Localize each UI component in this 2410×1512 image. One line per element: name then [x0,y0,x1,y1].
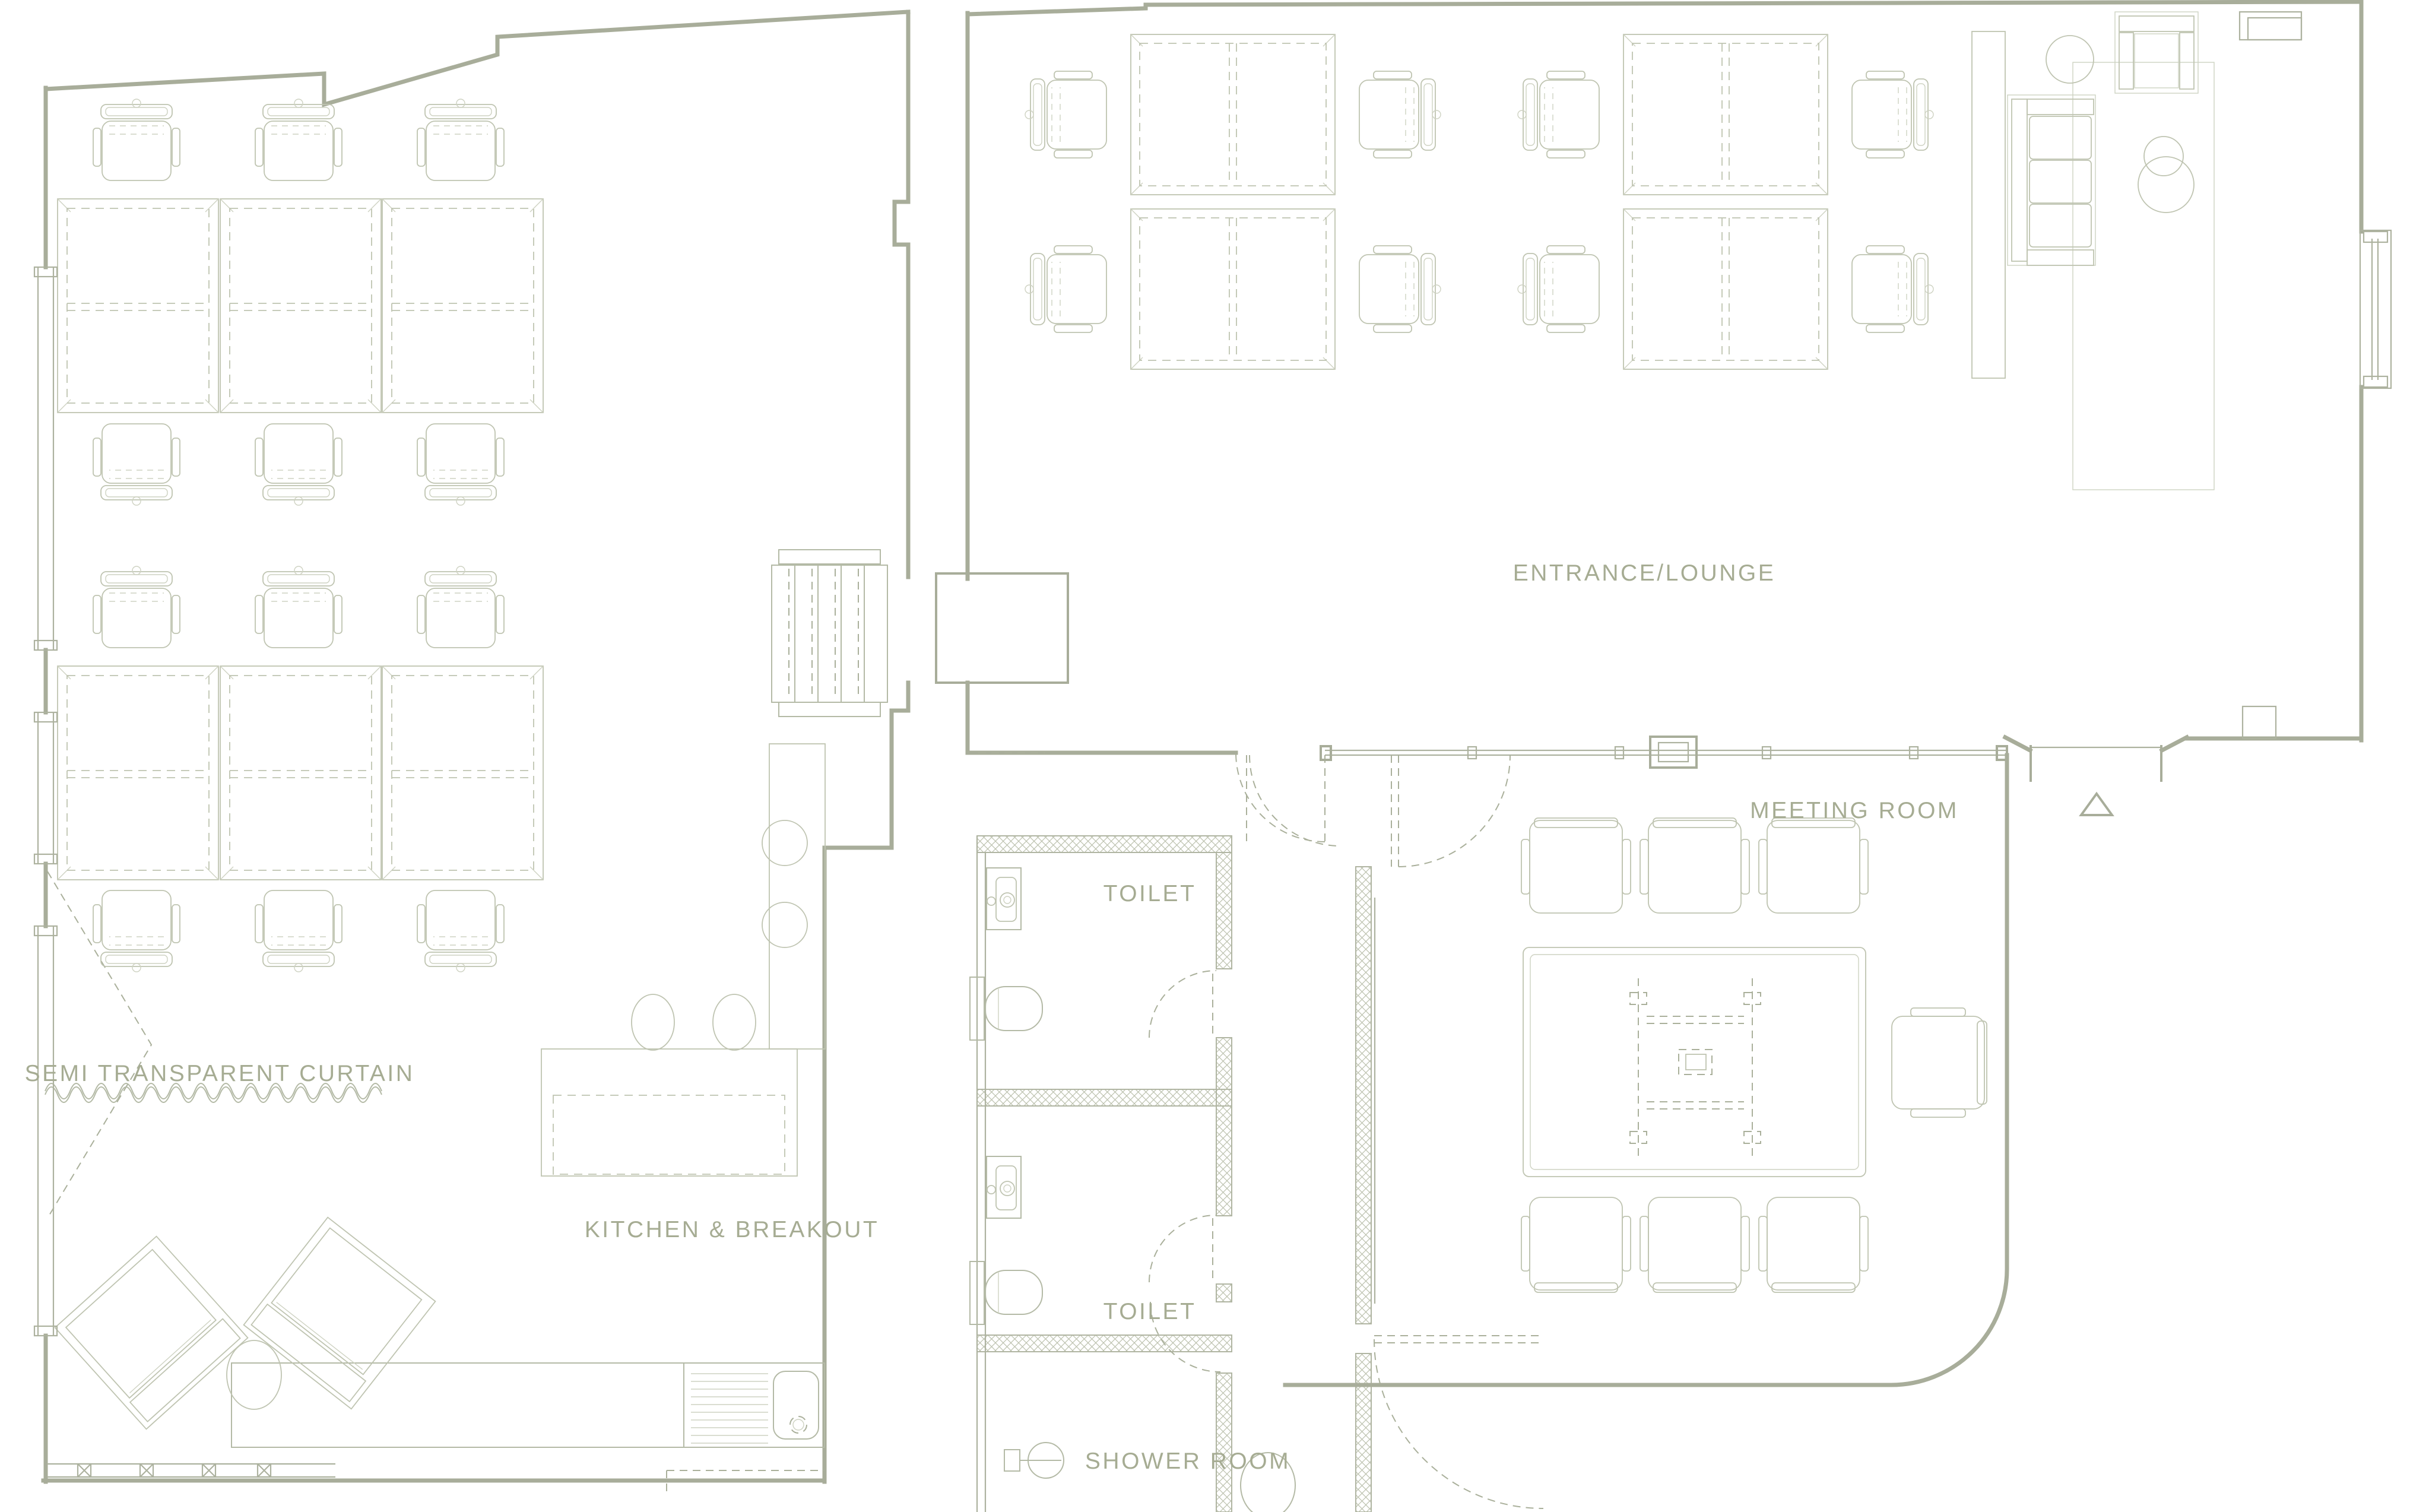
chairM [1521,818,1631,913]
breakout-armchair [55,1237,248,1429]
window-opening-symbol [47,871,151,1218]
lounge-outer-wall [968,2,2361,14]
chairT [1518,71,1599,158]
chairT [1852,71,1933,158]
chairT [1518,246,1599,332]
kitchen-counter [232,1363,825,1494]
coffee-table [227,1340,281,1409]
label-toilet-upper: TOILET [1103,881,1197,906]
left-wall-windows [34,267,57,1336]
entrance [2005,706,2361,815]
elevator-shaft [936,573,1068,683]
floor-plan-drawing: SEMI TRANSPARENT CURTAIN KITCHEN & BREAK… [0,0,2410,1512]
drainboard-lines [691,1374,768,1443]
chairT [1359,71,1441,158]
meeting-room [1285,755,2007,1385]
wc-toilet [985,987,1042,1031]
breakout-armchair [244,1218,436,1409]
tableL [1131,209,1335,369]
chairT [255,424,342,505]
workspace-area [18,12,908,1512]
window-band-marks [78,1464,271,1477]
floor-plan: SEMI TRANSPARENT CURTAIN KITCHEN & BREAK… [0,0,2410,1512]
chairT [417,890,504,972]
chairT [1025,246,1106,332]
chairM [1640,1197,1749,1292]
tableD [220,666,381,880]
tableD [58,666,218,880]
chairT [93,890,180,972]
chairM [1640,818,1749,913]
tableD [58,199,218,413]
chairT [417,566,504,648]
sofa [2008,95,2095,265]
chairM [1521,1197,1631,1292]
chairT [417,99,504,180]
chairM [1892,1008,1987,1117]
chairT [1852,246,1933,332]
tableD [220,199,381,413]
chairT [1359,246,1441,332]
label-entrance-lounge: ENTRANCE/LOUNGE [1513,560,1776,586]
lounge-corner [1972,12,2214,490]
label-toilet-lower: TOILET [1103,1299,1197,1324]
lounge-armchair [2115,12,2198,93]
tableD [382,199,543,413]
meeting-chairs [1521,818,1987,1292]
chairT [1025,71,1106,158]
kitchen-sink [773,1371,819,1439]
pouf [2144,137,2183,176]
chairT [255,566,342,648]
entrance-lounge-area [968,2,2391,842]
pouf [2138,157,2194,213]
wall-media-box [1650,737,1696,768]
chairT [255,99,342,180]
tableL [1623,34,1828,195]
rug [2073,62,2214,490]
label-shower: SHOWER ROOM [1085,1448,1290,1474]
table-legs [1630,978,1761,1158]
chairT [93,424,180,505]
conference-table [1523,947,1866,1177]
corner-frame [2240,12,2301,40]
desk-tables [58,199,543,880]
toilet-lower-fixtures [970,1156,1042,1324]
stairs [772,550,887,717]
chairT [93,99,180,180]
entrance-triangle [2081,794,2112,815]
sanitary-block [936,573,1543,1512]
label-kitchen: KITCHEN & BREAKOUT [585,1217,879,1242]
tableD [382,666,543,880]
sideboard [1972,31,2005,378]
kitchen-island [541,994,797,1176]
toilet-upper-fixtures [970,868,1042,1040]
tableL [1623,209,1828,369]
door-swings [1149,755,1543,1508]
chairM [1759,818,1868,913]
glass-partition [1321,737,2007,768]
round-table [2046,36,2094,83]
glass-posts [1468,747,1918,759]
lounge-tables [1131,34,1828,369]
right-window [2360,230,2391,388]
chairT [93,566,180,648]
standing-counter [762,744,825,1049]
workspace-outer-wall [46,12,908,104]
chairT [255,890,342,972]
chairM [1759,1197,1868,1292]
tableL [1131,34,1335,195]
label-meeting-room: MEETING ROOM [1750,798,1959,823]
bottom-window-band [47,1464,335,1477]
label-curtain: SEMI TRANSPARENT CURTAIN [25,1061,415,1086]
chairT [417,424,504,505]
